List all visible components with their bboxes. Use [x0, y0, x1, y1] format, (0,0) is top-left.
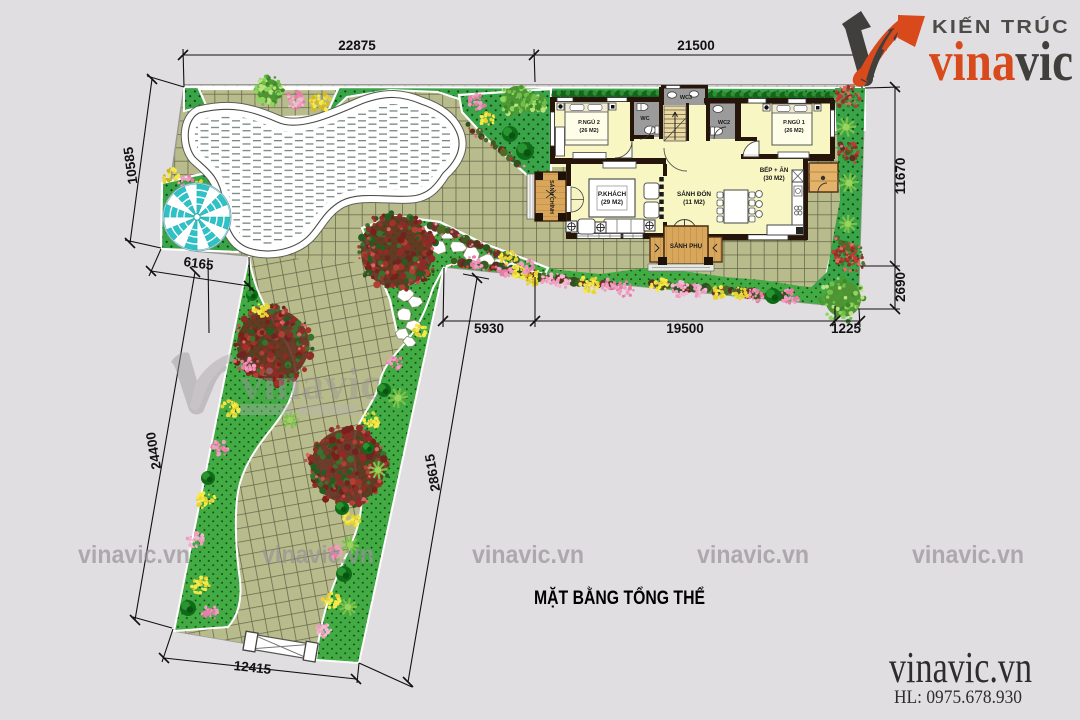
svg-text:vinavic: vinavic [929, 31, 1073, 93]
svg-text:WC3: WC3 [680, 95, 692, 101]
svg-text:SẢNH CHÍNH: SẢNH CHÍNH [548, 180, 556, 214]
svg-text:HL: 0975.678.930: HL: 0975.678.930 [894, 687, 1022, 708]
svg-text:P.KHÁCH: P.KHÁCH [598, 189, 627, 198]
svg-text:SẢNH ĐÓN: SẢNH ĐÓN [677, 189, 711, 198]
svg-text:11670: 11670 [893, 158, 908, 195]
svg-text:vinavic: vinavic [240, 358, 381, 409]
svg-text:P.NGỦ 1: P.NGỦ 1 [783, 119, 805, 126]
svg-text:WC2: WC2 [718, 120, 730, 126]
svg-text:WC: WC [640, 116, 649, 122]
svg-text:(26 M2): (26 M2) [579, 128, 598, 134]
svg-text:2690: 2690 [893, 272, 908, 302]
svg-text:vinavic.vn: vinavic.vn [262, 541, 374, 569]
svg-text:(29 M2): (29 M2) [601, 199, 623, 206]
svg-text:(11 M2): (11 M2) [683, 199, 705, 206]
svg-text:MẶT BẰNG TỔNG THỂ: MẶT BẰNG TỔNG THỂ [534, 587, 705, 609]
svg-text:(26 M2): (26 M2) [784, 128, 803, 134]
svg-text:vinavic.vn: vinavic.vn [78, 541, 190, 569]
svg-text:1225: 1225 [831, 321, 862, 336]
svg-text:22875: 22875 [338, 38, 376, 53]
svg-text:vinavic.vn: vinavic.vn [472, 541, 584, 569]
svg-text:19500: 19500 [666, 321, 704, 336]
svg-text:BẾP + ĂN: BẾP + ĂN [760, 167, 789, 174]
svg-text:vinavic.vn: vinavic.vn [697, 541, 809, 569]
svg-text:SẢNH PHỤ: SẢNH PHỤ [670, 243, 703, 250]
svg-text:vinavic.vn: vinavic.vn [889, 643, 1032, 692]
svg-text:(30 M2): (30 M2) [763, 175, 784, 182]
svg-text:vinavic.vn: vinavic.vn [912, 541, 1024, 569]
svg-text:P.NGỦ 2: P.NGỦ 2 [578, 119, 600, 126]
svg-text:5930: 5930 [474, 321, 504, 336]
svg-text:21500: 21500 [677, 38, 715, 53]
